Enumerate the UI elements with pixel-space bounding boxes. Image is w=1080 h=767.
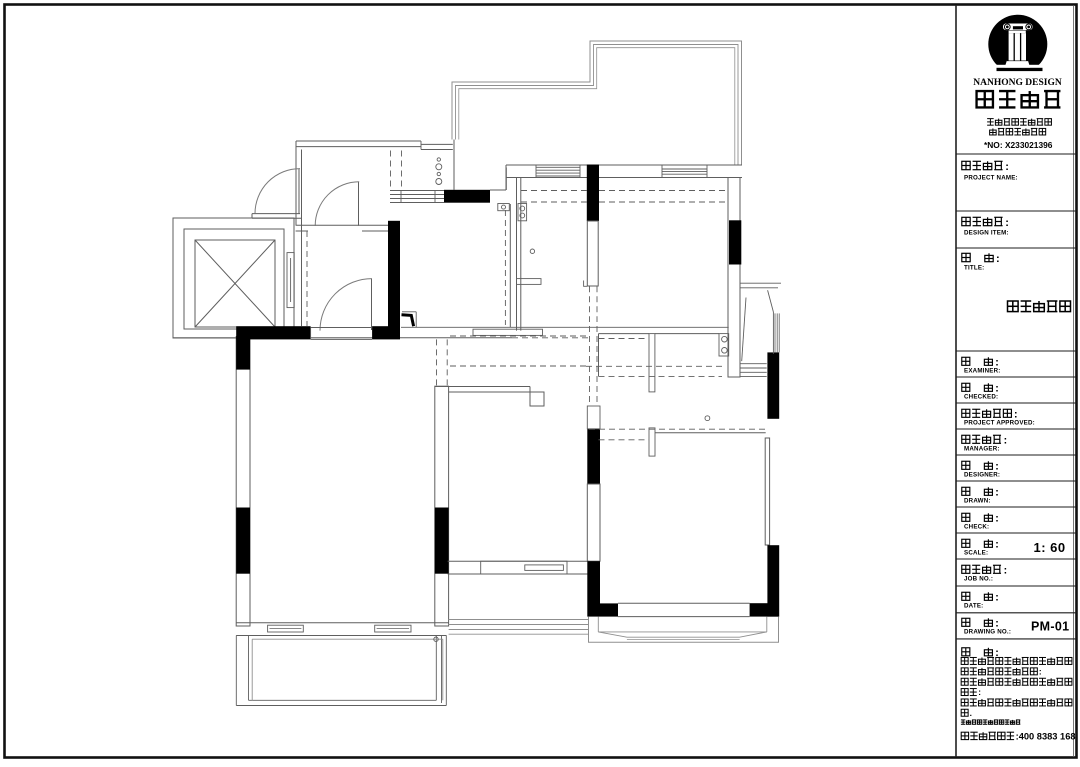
svg-text:DRAWING NO.:: DRAWING NO.: (964, 629, 1011, 636)
svg-text::: : (978, 687, 981, 697)
svg-text:SCALE:: SCALE: (964, 550, 988, 557)
svg-text::: : (996, 253, 1000, 265)
svg-text::: : (995, 513, 999, 525)
svg-text:PROJECT NAME:: PROJECT NAME: (964, 175, 1018, 182)
svg-text:1: 60: 1: 60 (1034, 540, 1066, 555)
svg-text:JOB NO.:: JOB NO.: (964, 576, 993, 583)
svg-text:DESIGNER:: DESIGNER: (964, 472, 1000, 479)
svg-text:EXAMINER:: EXAMINER: (964, 368, 1001, 375)
svg-text::: : (1039, 667, 1042, 677)
svg-text:PM-01: PM-01 (1031, 620, 1069, 634)
svg-text:TITLE:: TITLE: (964, 265, 984, 272)
svg-text::: : (995, 539, 999, 551)
svg-text::: : (1004, 435, 1008, 447)
svg-text:CHECKED:: CHECKED: (964, 394, 998, 401)
svg-text:*NO: X233021396: *NO: X233021396 (984, 140, 1053, 150)
svg-text:DATE:: DATE: (964, 603, 983, 610)
svg-text::400 8383 168: :400 8383 168 (1016, 731, 1076, 741)
svg-text:PROJECT APPROVED:: PROJECT APPROVED: (964, 420, 1035, 427)
svg-text:CHECK:: CHECK: (964, 524, 989, 531)
svg-text:NANHONG DESIGN: NANHONG DESIGN (973, 78, 1062, 88)
svg-text:DRAWN:: DRAWN: (964, 498, 991, 505)
svg-text:MANAGER:: MANAGER: (964, 446, 1000, 453)
svg-text::: : (1005, 161, 1009, 173)
svg-text::: : (995, 487, 999, 499)
svg-text::: : (1004, 565, 1008, 577)
svg-text:.: . (970, 708, 972, 718)
svg-text::: : (1005, 217, 1009, 229)
svg-text::: : (995, 592, 999, 604)
svg-text:DESIGN ITEM:: DESIGN ITEM: (964, 230, 1009, 237)
